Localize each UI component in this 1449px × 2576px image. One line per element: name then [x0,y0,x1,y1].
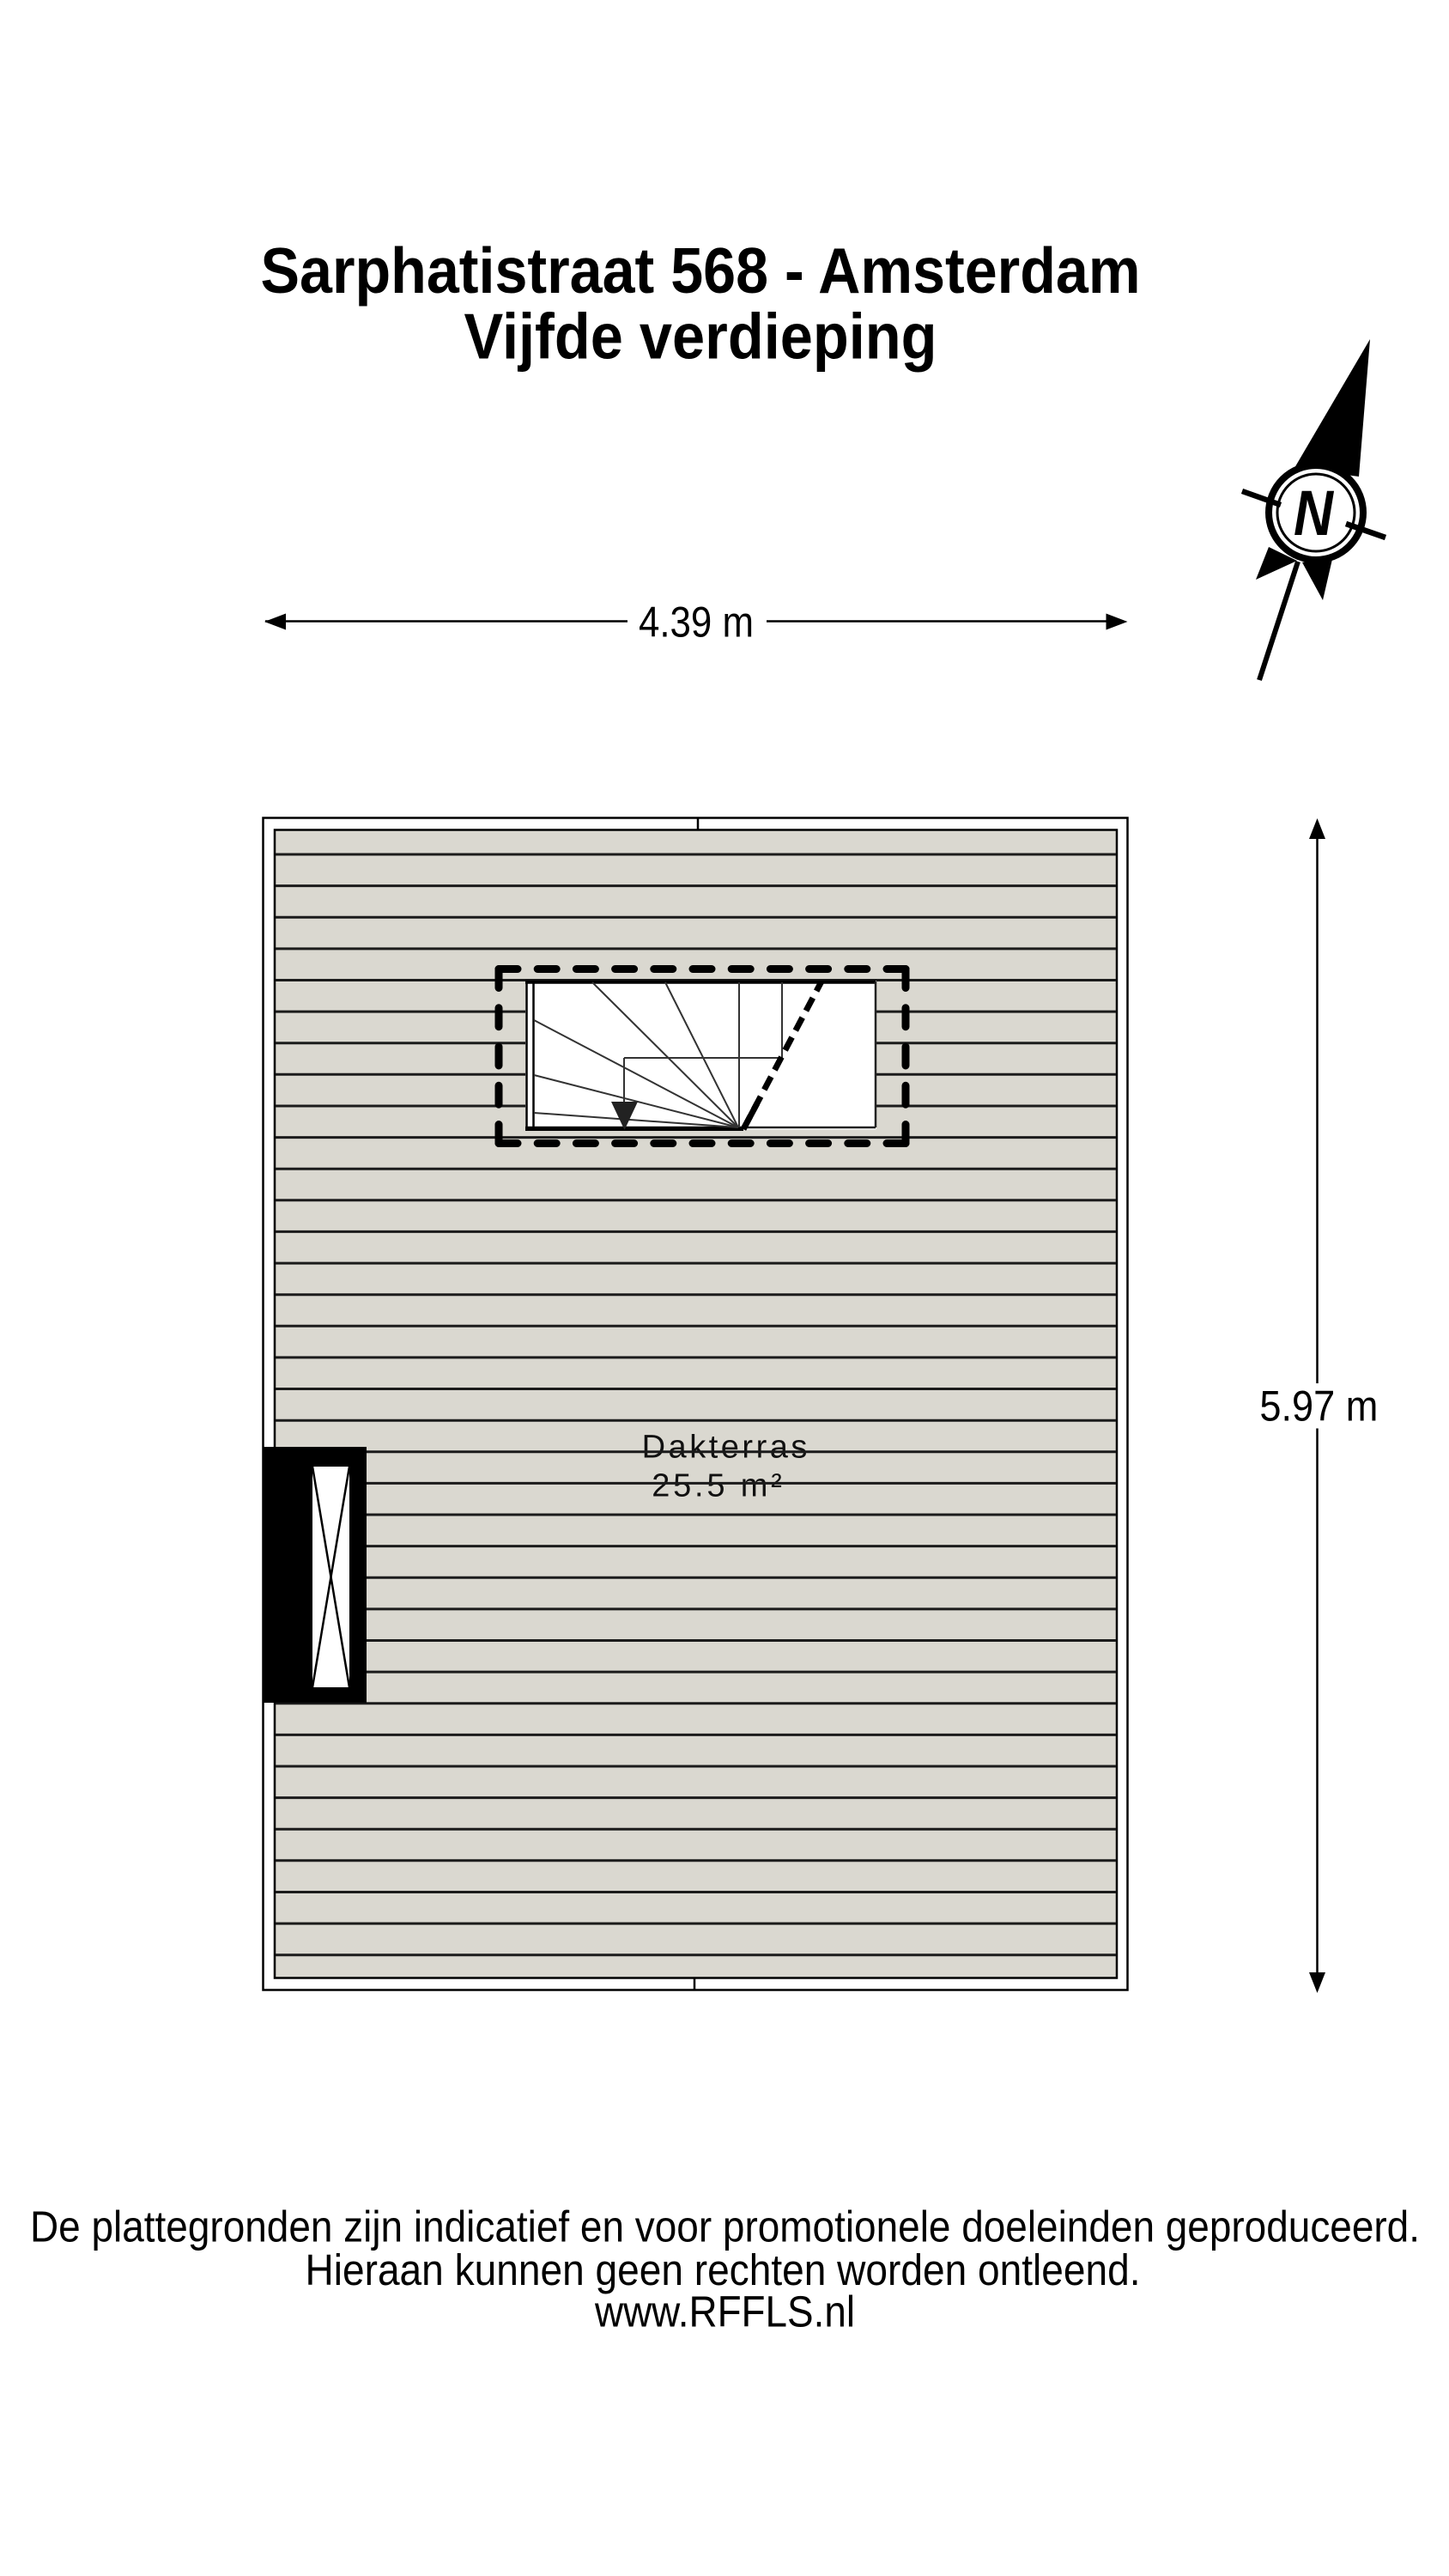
svg-text:N: N [1294,477,1334,549]
svg-text:Vijfde verdieping: Vijfde verdieping [464,301,937,373]
svg-text:www.RFFLS.nl: www.RFFLS.nl [594,2287,855,2336]
svg-text:5.97 m: 5.97 m [1259,1382,1378,1430]
svg-text:4.39 m: 4.39 m [639,598,754,647]
svg-text:Sarphatistraat 568 - Amsterdam: Sarphatistraat 568 - Amsterdam [261,234,1141,307]
svg-text:De plattegronden zijn indicati: De plattegronden zijn indicatief en voor… [30,2202,1420,2251]
